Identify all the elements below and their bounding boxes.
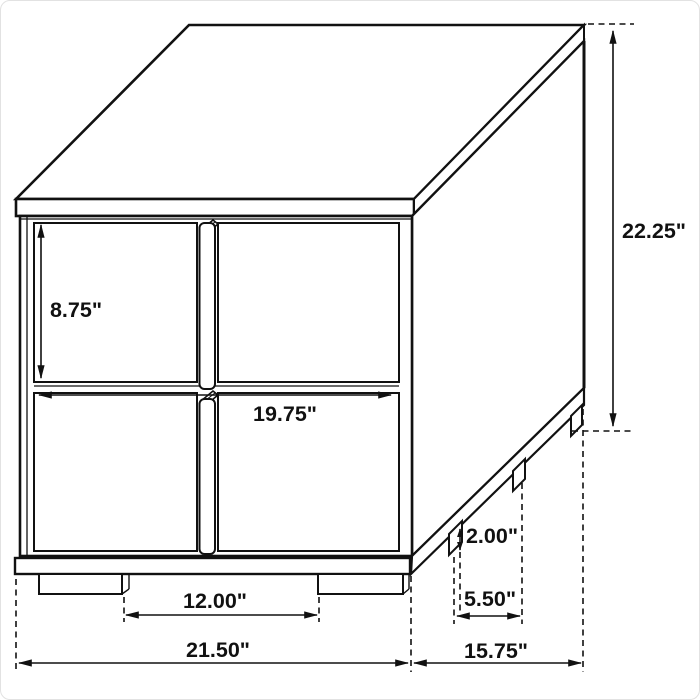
handle-upper-bar — [200, 223, 216, 389]
drawer-panel-lower-left — [34, 393, 197, 551]
nightstand-dimension-diagram: 8.75" 19.75" 22.25" 2.00" 5.50" 12.00" 2… — [1, 1, 700, 700]
label-front-leg-spacing: 12.00" — [183, 589, 247, 613]
label-overall-height: 22.25" — [622, 219, 686, 243]
handle-upper — [200, 220, 219, 389]
label-drawer-width: 19.75" — [253, 402, 317, 426]
handle-lower-bar — [200, 399, 216, 554]
base-front — [15, 558, 410, 574]
label-side-leg-spacing: 5.50" — [464, 587, 516, 611]
label-leg-height: 2.00" — [466, 524, 518, 548]
handle-lower — [200, 391, 219, 554]
front-left-leg — [39, 574, 129, 594]
top-slab-front — [16, 199, 414, 216]
drawer-panel-upper-right — [218, 223, 399, 382]
label-overall-width: 21.50" — [186, 638, 250, 662]
front-right-leg — [318, 574, 409, 594]
dimension-diagram-page: 8.75" 19.75" 22.25" 2.00" 5.50" 12.00" 2… — [0, 0, 700, 700]
label-overall-depth: 15.75" — [464, 639, 528, 663]
label-drawer-height: 8.75" — [50, 298, 102, 322]
